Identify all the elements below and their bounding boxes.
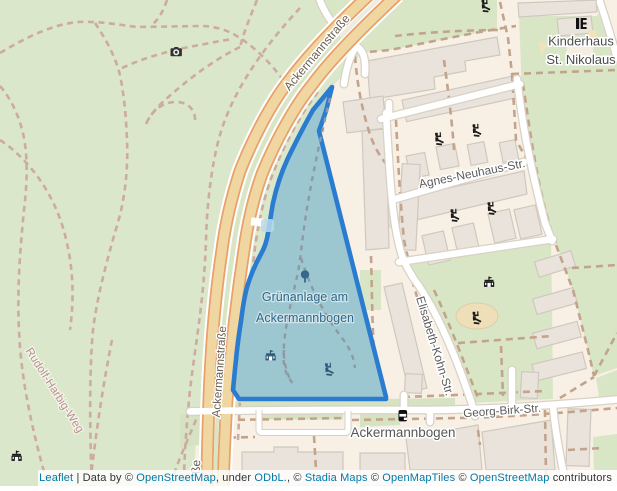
- svg-text:St. Nikolaus: St. Nikolaus: [546, 52, 616, 67]
- svg-text:Kinderhaus: Kinderhaus: [548, 34, 614, 49]
- svg-text:Ackermannbogen: Ackermannbogen: [256, 311, 354, 325]
- svg-text:Grünanlage am: Grünanlage am: [262, 290, 348, 304]
- svg-text:Ackermannbogen: Ackermannbogen: [351, 425, 456, 440]
